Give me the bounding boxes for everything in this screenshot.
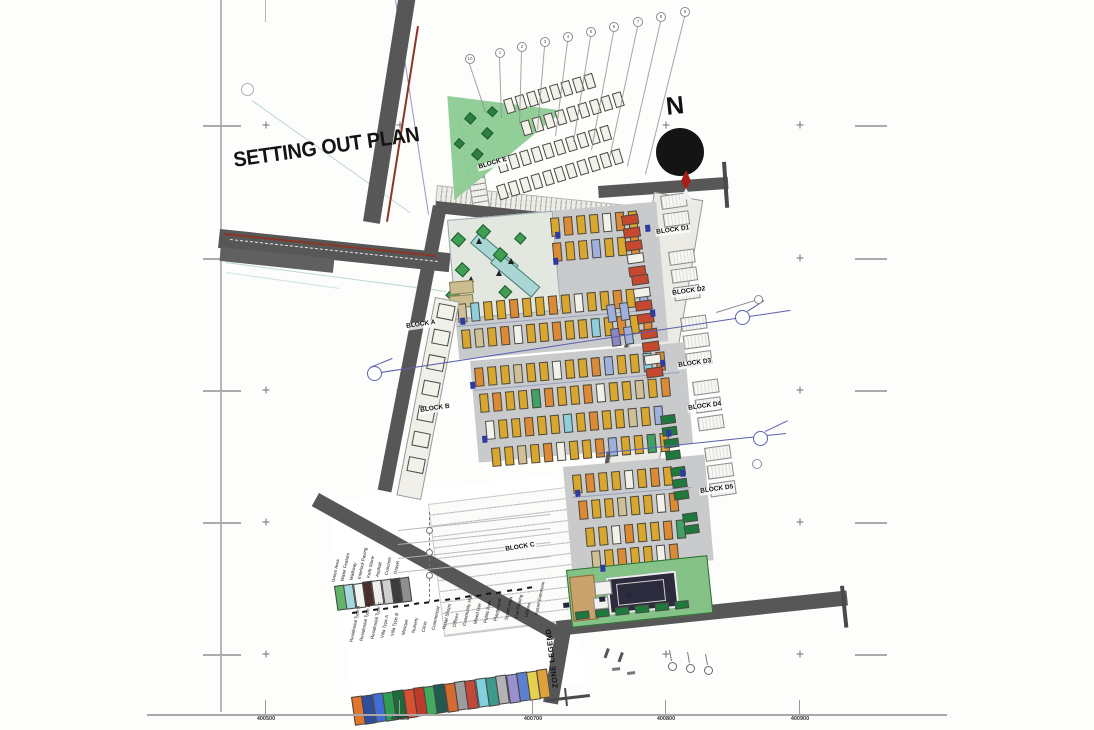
houses-row (585, 528, 586, 529)
legend-node (426, 572, 433, 579)
house (608, 437, 619, 457)
house (624, 470, 635, 490)
axis-coordinate-label: 400800 (652, 717, 680, 723)
house (539, 322, 550, 342)
building (421, 380, 441, 398)
house (552, 321, 563, 341)
house (595, 608, 610, 617)
legend-node (426, 549, 433, 556)
house (530, 173, 543, 190)
axis-tick (399, 700, 400, 714)
house (637, 523, 648, 543)
house (563, 413, 574, 433)
dblock-building (707, 462, 735, 479)
bubble-number: 7 (637, 20, 640, 25)
bubble-number: 2 (521, 45, 524, 50)
house (633, 435, 644, 455)
dblock-building (704, 444, 732, 461)
house (583, 384, 594, 404)
callout-bubble (668, 662, 677, 671)
entrance-marker (553, 258, 559, 265)
axis-coordinate-label: 400700 (519, 717, 547, 723)
houses-row (550, 218, 551, 219)
house (635, 604, 650, 613)
houses-row (474, 368, 475, 369)
axis-coordinate-label: 400600 (386, 717, 414, 723)
drawing-title: SETTING OUT PLAN (232, 123, 421, 173)
north-arrow: N (650, 92, 710, 184)
compass-icon (656, 128, 704, 176)
house (557, 386, 568, 406)
house (565, 359, 576, 379)
dblock-building (697, 414, 725, 431)
house (505, 391, 516, 411)
house (576, 412, 587, 432)
house (604, 356, 615, 376)
green-strip (670, 468, 671, 469)
house (544, 388, 555, 408)
house (629, 354, 640, 374)
grid-dash (203, 654, 241, 656)
grid-bubble: 5 (586, 27, 596, 37)
bubble-number: 6 (613, 25, 616, 30)
house (650, 467, 661, 487)
house (640, 407, 651, 427)
grid-cross (263, 651, 270, 658)
grid-cross (797, 122, 804, 129)
dblock-buildings (704, 448, 705, 449)
houses-row (552, 243, 553, 244)
grid-dash (203, 390, 241, 392)
house (509, 299, 520, 319)
house (561, 294, 572, 314)
bubble-number: 8 (660, 15, 663, 20)
grid-dash (203, 522, 241, 524)
house (491, 447, 502, 467)
house (587, 292, 598, 312)
house (498, 419, 509, 439)
grid-bubble: 2 (517, 42, 527, 52)
house (589, 214, 600, 234)
grid-bubble: 8 (656, 12, 666, 22)
building (663, 438, 679, 449)
house (616, 355, 627, 375)
grid-dash (855, 390, 887, 392)
mosque-strip (621, 216, 622, 217)
bubble-number: 3 (544, 40, 547, 45)
house (624, 524, 635, 544)
green-strip (682, 514, 683, 515)
dim-mark (618, 652, 624, 662)
house (556, 442, 567, 462)
bubble-number: 5 (590, 30, 593, 35)
grid-cross (263, 122, 270, 129)
house (474, 367, 485, 387)
house (578, 240, 589, 260)
axis-tick (665, 700, 666, 714)
green-strip (660, 416, 661, 417)
house (611, 148, 624, 165)
house (565, 135, 578, 152)
building (411, 431, 431, 449)
grid-cross (797, 387, 804, 394)
entrance-marker (460, 318, 466, 325)
house (600, 95, 613, 112)
house (574, 293, 585, 313)
service-building (594, 580, 612, 596)
house (598, 526, 609, 546)
bubble-number: 4 (567, 35, 570, 40)
house (496, 300, 507, 320)
grid-bubble: 7 (633, 17, 643, 27)
building (436, 303, 456, 321)
dblock-building (671, 266, 699, 283)
grid-bubble (241, 83, 254, 96)
grid-dash (855, 522, 887, 524)
house (617, 497, 628, 517)
house (602, 410, 613, 430)
house (615, 409, 626, 429)
house (552, 360, 563, 380)
setting-out-plan-drawing: 12345678910Green AreaWater FeatureWalkwa… (0, 0, 1094, 730)
house (470, 302, 481, 322)
house (575, 611, 590, 620)
house (479, 393, 490, 413)
houses-row (578, 501, 579, 502)
house (674, 600, 689, 609)
house (474, 328, 485, 348)
house (487, 327, 498, 347)
entrance-marker (650, 310, 656, 317)
house (511, 418, 522, 438)
house (609, 382, 620, 402)
grid-cross (263, 387, 270, 394)
legend-node (426, 527, 433, 534)
leader (716, 300, 755, 313)
house (611, 471, 622, 491)
entrance-marker (660, 360, 666, 367)
house (492, 392, 503, 412)
blocke-houses-row (503, 100, 504, 101)
house (500, 365, 511, 385)
callout-bubble (752, 459, 762, 469)
bubble-number: 1 (499, 51, 502, 56)
grid-dash (855, 125, 887, 127)
house (548, 295, 559, 315)
houses-row (610, 329, 611, 330)
house (522, 298, 533, 318)
house (539, 362, 550, 382)
house (578, 358, 589, 378)
house (655, 602, 670, 611)
house (542, 169, 555, 186)
dim-mark (627, 671, 635, 675)
house (660, 377, 671, 397)
leader (669, 650, 672, 661)
house (563, 216, 574, 236)
house (578, 319, 589, 339)
callout-bubble (686, 664, 695, 673)
houses-row (491, 448, 492, 449)
grid-bubble: 4 (563, 32, 573, 42)
entrance-marker (680, 470, 686, 477)
house (530, 146, 543, 163)
grid-bubble: 3 (540, 37, 550, 47)
house (513, 364, 524, 384)
houses-row (591, 551, 592, 552)
house (526, 324, 537, 344)
house (604, 498, 615, 518)
house (542, 142, 555, 159)
dim-mark (604, 648, 610, 658)
legend-dash (517, 588, 522, 591)
bubble-number: 9 (684, 10, 687, 15)
mosque-strip (631, 276, 632, 277)
dblock-building (692, 378, 720, 395)
grid-bubble: 9 (680, 7, 690, 17)
grid-cross (263, 519, 270, 526)
grid-cross (797, 255, 804, 262)
house (591, 357, 602, 377)
house (504, 446, 515, 466)
gate-marker (563, 602, 569, 608)
dblock-buildings (680, 318, 681, 319)
house (518, 390, 529, 410)
entrance-marker (470, 382, 476, 389)
grid-tick-top (265, 0, 266, 22)
house (526, 90, 539, 107)
grid-cross (797, 651, 804, 658)
houses-row (479, 394, 480, 395)
house (570, 385, 581, 405)
survey-marker (367, 366, 382, 381)
house (596, 383, 607, 403)
legend-survey-line (429, 512, 430, 602)
hedge-row (575, 612, 576, 613)
callout-bubble (754, 295, 763, 304)
houses-row (572, 475, 573, 476)
house (615, 606, 630, 615)
house (519, 149, 532, 166)
house (500, 326, 511, 346)
house (591, 499, 602, 519)
legend-dash (476, 594, 481, 597)
house (553, 139, 566, 156)
entrance-marker (666, 430, 672, 437)
house (565, 320, 576, 340)
house (553, 166, 566, 183)
house (531, 389, 542, 409)
house (576, 215, 587, 235)
house (461, 329, 472, 349)
house (535, 296, 546, 316)
house (656, 493, 667, 513)
callout-bubble (704, 666, 713, 675)
house (565, 162, 578, 179)
blocke-houses-row (520, 122, 521, 123)
survey-marker (753, 431, 768, 446)
dblock-buildings (668, 252, 669, 253)
house (595, 438, 606, 458)
house (583, 73, 596, 90)
house (550, 415, 561, 435)
axis-tick (265, 700, 266, 714)
mosque-strip (640, 330, 641, 331)
dblock-buildings (692, 382, 693, 383)
house (513, 325, 524, 345)
north-label: N (665, 91, 686, 122)
house (643, 495, 654, 515)
dblock-building (683, 332, 711, 349)
grid-dash (203, 125, 241, 127)
axis-coordinate-label: 400900 (786, 717, 814, 723)
axis-tick (799, 700, 800, 714)
house (599, 125, 612, 142)
house (576, 132, 589, 149)
house (519, 176, 532, 193)
building (406, 456, 426, 474)
house (576, 159, 589, 176)
house (650, 522, 661, 542)
leader (687, 652, 690, 663)
entrance-marker (575, 490, 581, 497)
house (483, 301, 494, 321)
blocke-houses-row (496, 186, 497, 187)
houses-row (461, 330, 462, 331)
house (537, 416, 548, 436)
entrance-marker (600, 565, 606, 572)
house (517, 445, 528, 465)
house (611, 525, 622, 545)
house (588, 155, 601, 172)
grid-cross (663, 651, 670, 658)
house (598, 472, 609, 492)
gate-marker (599, 596, 605, 602)
survey-flag (370, 358, 392, 368)
house (604, 238, 615, 258)
house (621, 381, 632, 401)
legend-dash (383, 607, 388, 610)
axis-tick (532, 700, 533, 714)
building (431, 329, 451, 347)
house (591, 318, 602, 338)
grid-bubble: 10 (465, 54, 475, 64)
dim-mark (612, 667, 620, 671)
house (526, 363, 537, 383)
road-endbar (840, 586, 848, 628)
road (363, 0, 416, 224)
survey-flag (765, 420, 788, 432)
house (663, 520, 674, 540)
house (630, 496, 641, 516)
house (487, 366, 498, 386)
axis-coordinate-label: 400500 (252, 717, 280, 723)
house (627, 408, 638, 428)
house (565, 241, 576, 261)
legend-dash (455, 597, 460, 600)
house (589, 411, 600, 431)
house (582, 439, 593, 459)
house (585, 527, 596, 547)
entrance-marker (482, 436, 488, 443)
house (507, 153, 520, 170)
entrance-marker (645, 225, 651, 232)
grid-axis-left (221, 0, 223, 712)
grid-bubble: 1 (495, 48, 505, 58)
house (591, 239, 602, 259)
grid-cross (797, 519, 804, 526)
legend-dash (404, 604, 409, 607)
house (543, 443, 554, 463)
house (524, 417, 535, 437)
landscape-plot (449, 280, 474, 295)
gate-marker (626, 592, 632, 598)
dblock-buildings (660, 196, 661, 197)
house (646, 434, 657, 454)
frontage-buildings (439, 303, 440, 304)
grid-dash (855, 258, 887, 260)
house (602, 213, 613, 233)
bubble-number: 10 (467, 57, 472, 62)
house (530, 444, 541, 464)
house (578, 500, 589, 520)
house (621, 436, 632, 456)
entrance-marker (555, 232, 561, 239)
leader (705, 654, 708, 665)
houses-row (606, 305, 607, 306)
house (585, 473, 596, 493)
grid-dash (855, 654, 887, 656)
legend-dash (496, 591, 501, 594)
grid-bubble: 6 (609, 22, 619, 32)
house (634, 380, 645, 400)
house (637, 469, 648, 489)
houses-row (485, 421, 486, 422)
house (647, 378, 658, 398)
house (569, 440, 580, 460)
